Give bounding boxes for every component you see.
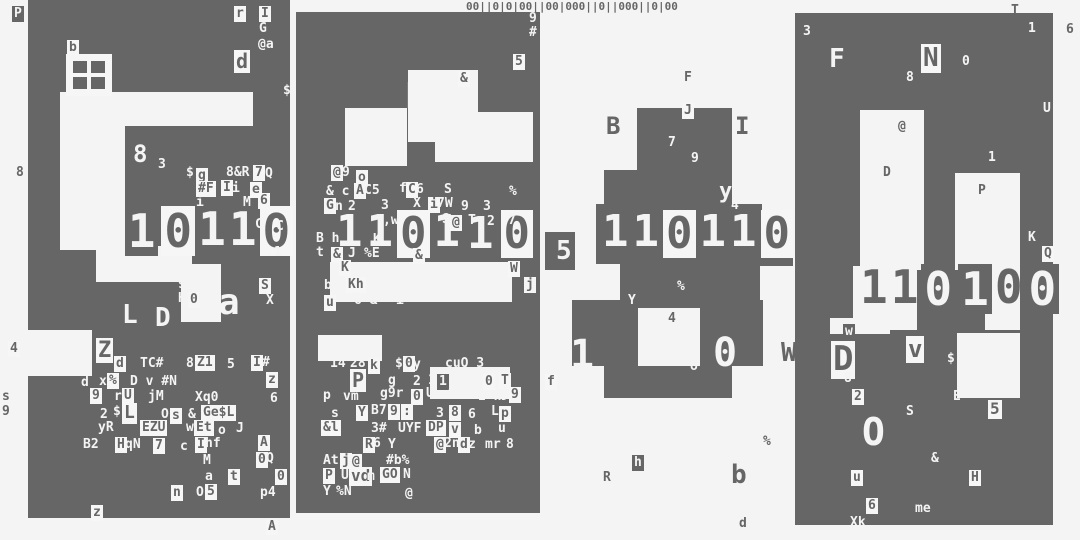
noise-glyph: 9 — [388, 404, 400, 420]
noise-glyph: S — [259, 278, 271, 294]
noise-glyph: %N — [336, 485, 352, 499]
noise-glyph: 7W — [437, 197, 453, 211]
noise-glyph: Q — [265, 167, 273, 181]
noise-glyph: # — [262, 356, 270, 370]
noise-glyph: X — [266, 294, 274, 308]
noise-glyph: DP — [426, 420, 446, 436]
code-char: 0 — [921, 264, 955, 314]
noise-glyph: A — [258, 435, 270, 451]
noise-glyph: G — [259, 22, 267, 36]
noise-glyph: 1 — [1028, 22, 1036, 36]
noise-glyph: Ge$L — [201, 405, 236, 421]
noise-glyph: U — [341, 469, 349, 483]
noise-glyph: 6 — [258, 193, 270, 209]
noise-glyph: Z1 — [195, 355, 215, 371]
noise-glyph: Xq0 — [195, 391, 218, 405]
noise-glyph: b — [731, 462, 747, 489]
white-rect — [955, 173, 1020, 270]
noise-glyph: D v #N — [130, 375, 177, 389]
noise-glyph: j — [501, 387, 509, 401]
noise-glyph: 5 — [988, 400, 1002, 419]
noise-glyph: B2 — [83, 438, 99, 452]
noise-glyph: x — [99, 375, 107, 389]
noise-glyph: b — [67, 40, 79, 56]
noise-glyph: W — [508, 261, 520, 277]
noise-glyph: yR — [98, 421, 114, 435]
noise-glyph: L — [122, 302, 138, 329]
white-rect — [860, 110, 924, 270]
noise-glyph: p — [499, 406, 511, 422]
noise-glyph: 4 — [731, 199, 739, 213]
noise-glyph: 0 — [483, 374, 495, 390]
code-char: 1 — [700, 210, 727, 254]
noise-glyph: EZU — [140, 420, 167, 436]
noise-glyph: N — [401, 467, 413, 483]
noise-glyph: D — [883, 166, 891, 180]
noise-glyph: b — [474, 424, 482, 438]
noise-glyph: % — [107, 373, 119, 389]
noise-glyph: H — [178, 292, 186, 306]
noise-glyph: 1 — [570, 334, 594, 376]
white-rect — [60, 92, 253, 126]
noise-glyph: P — [323, 468, 335, 484]
noise-glyph: 6 — [468, 408, 476, 422]
noise-glyph: 6 — [866, 498, 878, 514]
noise-glyph: jM — [148, 390, 164, 404]
noise-glyph: O — [198, 292, 206, 306]
noise-glyph: o — [690, 360, 698, 374]
noise-glyph: 9 — [461, 200, 469, 214]
noise-glyph: 8 — [186, 357, 194, 371]
noise-glyph: Y — [323, 485, 331, 499]
noise-glyph: s — [170, 408, 182, 424]
noise-glyph: $ — [113, 405, 121, 419]
noise-glyph: 9 — [178, 278, 186, 292]
noise-glyph: 2 — [348, 200, 356, 214]
noise-glyph: Et — [194, 420, 214, 436]
code-char: 1 — [125, 206, 159, 256]
noise-glyph: 3 — [803, 25, 811, 39]
noise-glyph: I — [735, 114, 749, 139]
noise-glyph: 9 — [2, 405, 10, 419]
noise-glyph: C — [276, 220, 284, 234]
noise-glyph: D — [155, 305, 171, 332]
panel4-code: 110100 — [860, 264, 1059, 314]
code-char: 0 — [995, 264, 1023, 310]
noise-glyph: 14 — [330, 357, 346, 371]
noise-glyph: me — [915, 502, 931, 516]
noise-glyph: S — [444, 183, 452, 197]
noise-glyph: 6 — [270, 392, 278, 406]
noise-glyph: T — [1011, 4, 1019, 18]
code-char: 1 — [958, 264, 992, 314]
noise-glyph: @a — [258, 38, 274, 52]
noise-glyph: 8 — [906, 71, 914, 85]
noise-glyph: ,w — [383, 214, 399, 228]
noise-glyph: k — [368, 358, 380, 374]
noise-glyph: 8 — [133, 142, 147, 167]
code-char: 1 — [229, 206, 257, 252]
noise-glyph: f — [545, 374, 557, 390]
noise-glyph: O — [196, 486, 204, 500]
noise-glyph: % — [677, 280, 685, 294]
noise-glyph: 0 — [962, 55, 970, 69]
noise-glyph: 9 — [90, 388, 102, 404]
noise-glyph: 3 — [436, 407, 444, 421]
noise-glyph: F — [829, 46, 845, 73]
noise-glyph: M — [203, 454, 211, 468]
noise-glyph: $ — [947, 352, 955, 366]
noise-glyph: 7 — [253, 165, 265, 181]
noise-glyph: J — [348, 247, 356, 261]
panel1-code: 110110 — [94, 206, 293, 256]
noise-glyph: 6 — [373, 437, 381, 451]
noise-glyph: 8&R — [226, 166, 249, 180]
noise-glyph: d — [234, 50, 250, 73]
noise-glyph: a — [205, 470, 213, 484]
code-char: 1 — [633, 210, 660, 254]
code-char: 0 — [501, 210, 534, 258]
noise-glyph: & — [931, 452, 939, 466]
noise-glyph: 0 — [411, 389, 423, 405]
noise-glyph: & — [458, 71, 470, 87]
noise-glyph: 5 — [556, 238, 572, 265]
noise-glyph: d — [114, 356, 126, 372]
noise-glyph: & — [413, 248, 425, 264]
code-char: 1 — [891, 264, 919, 310]
noise-glyph: $ — [186, 166, 194, 180]
code-char: 0 — [161, 206, 195, 256]
noise-glyph: @ — [405, 487, 413, 501]
noise-glyph: 3# — [371, 422, 387, 436]
noise-glyph: qN — [125, 438, 141, 452]
noise-glyph: i — [232, 182, 240, 196]
noise-glyph: Y — [356, 405, 368, 421]
noise-glyph: h — [632, 455, 644, 471]
noise-glyph: 6 & — [354, 294, 377, 308]
noise-glyph: o1 — [446, 387, 462, 401]
noise-captcha-canvas: 110110110110110110110100 P84s9T6brIG@ad$… — [0, 0, 1080, 540]
noise-glyph: Q — [266, 452, 274, 466]
noise-glyph: 9 — [509, 387, 521, 403]
noise-glyph: H — [969, 470, 981, 486]
noise-glyph: O — [862, 413, 885, 453]
noise-glyph: $ — [283, 84, 291, 98]
noise-glyph: u — [851, 470, 863, 486]
noise-glyph: i — [196, 196, 204, 210]
noise-glyph: 4 — [440, 86, 459, 120]
noise-glyph: u — [324, 295, 336, 311]
noise-glyph: 2 — [852, 389, 864, 405]
noise-glyph: Y — [388, 438, 396, 452]
noise-glyph: 1 — [988, 151, 996, 165]
noise-glyph: &l — [321, 420, 341, 436]
noise-glyph: L — [122, 403, 137, 424]
noise-glyph: Kh — [346, 277, 366, 293]
noise-glyph: n — [335, 200, 343, 214]
noise-glyph: t — [316, 246, 324, 260]
noise-glyph: A — [266, 519, 278, 535]
white-rect — [28, 330, 92, 376]
noise-glyph: s — [331, 407, 339, 421]
noise-glyph: 6 — [416, 183, 424, 197]
noise-glyph: 4 — [668, 312, 676, 326]
noise-glyph: .1 — [266, 246, 282, 260]
noise-glyph: S — [906, 405, 914, 419]
noise-glyph: L — [491, 405, 499, 419]
noise-glyph: k — [405, 80, 425, 116]
noise-glyph: t — [228, 469, 240, 485]
noise-glyph: w — [186, 421, 194, 435]
noise-glyph: Xk — [850, 516, 866, 530]
noise-glyph: F — [684, 71, 692, 85]
noise-glyph: 2 — [413, 375, 421, 389]
noise-glyph: p4 — [260, 486, 276, 500]
noise-glyph: 5 — [205, 484, 217, 500]
noise-glyph: C5 — [364, 184, 380, 198]
noise-glyph: 0 — [275, 469, 287, 485]
noise-glyph: c — [180, 440, 188, 454]
noise-glyph: v — [906, 336, 924, 363]
noise-glyph: E n — [478, 390, 501, 404]
noise-glyph: $ — [395, 357, 403, 371]
noise-glyph: J — [682, 103, 694, 119]
noise-glyph: 7 — [508, 214, 516, 228]
noise-glyph: a — [373, 262, 381, 276]
code-char: 0 — [663, 210, 696, 258]
noise-glyph: vm — [343, 390, 359, 404]
code-char: 0 — [761, 210, 794, 258]
noise-glyph: hf — [205, 437, 221, 451]
noise-glyph: B — [606, 114, 620, 139]
noise-glyph: g9r — [380, 387, 403, 401]
white-rect — [830, 318, 890, 334]
code-char: 1 — [860, 264, 888, 310]
noise-glyph: : — [401, 404, 413, 420]
noise-glyph: z — [266, 372, 278, 388]
noise-glyph: P — [210, 280, 218, 294]
noise-glyph: z — [91, 505, 103, 521]
noise-glyph: C — [255, 218, 263, 232]
noise-glyph: b — [324, 279, 332, 293]
noise-glyph: cuQ 3 — [445, 357, 484, 371]
noise-glyph: % — [763, 435, 771, 449]
window-grid-icon — [66, 54, 112, 96]
noise-glyph: # H — [388, 279, 411, 293]
noise-glyph: n — [171, 485, 183, 501]
noise-glyph: a — [218, 284, 240, 322]
noise-glyph: %E — [364, 247, 380, 261]
noise-glyph: w — [66, 196, 74, 210]
noise-glyph: J — [236, 422, 244, 436]
noise-glyph: 8 — [506, 438, 514, 452]
code-char: 1 — [198, 206, 226, 252]
noise-glyph: r — [114, 390, 122, 404]
noise-glyph: # — [529, 26, 537, 40]
noise-glyph: N — [921, 44, 941, 73]
noise-glyph: u — [498, 422, 506, 436]
panel3-code: 110110 — [602, 210, 793, 258]
noise-glyph: 8 — [844, 372, 852, 386]
noise-glyph: s — [371, 280, 379, 294]
noise-glyph: K — [339, 260, 351, 276]
noise-glyph: 2 — [487, 215, 495, 229]
noise-glyph: W — [781, 340, 797, 367]
noise-glyph: 7 — [153, 438, 165, 454]
noise-glyph: Q — [1042, 246, 1054, 262]
noise-glyph: S — [442, 213, 450, 227]
noise-glyph: @ — [898, 120, 906, 134]
noise-glyph: 9 — [691, 152, 699, 166]
noise-glyph: s — [2, 390, 10, 404]
noise-glyph: UYF — [398, 422, 421, 436]
noise-glyph: @ — [450, 215, 462, 231]
noise-glyph: 9 — [529, 12, 537, 26]
noise-glyph: 3 — [483, 200, 491, 214]
noise-glyph: 3 — [158, 158, 166, 172]
noise-glyph: Z — [96, 338, 113, 363]
code-char: 1 — [730, 210, 757, 254]
noise-glyph: 5 — [513, 54, 525, 70]
noise-glyph: M — [243, 196, 251, 210]
noise-glyph: 3 — [381, 199, 389, 213]
noise-glyph: 6 — [1066, 23, 1074, 37]
noise-glyph: #b% — [386, 454, 409, 468]
top-binary-string: 00||0|0|00||00|000||0||000||0|00 — [466, 0, 678, 13]
noise-glyph: j — [524, 277, 536, 293]
noise-glyph: 5 — [227, 358, 235, 372]
noise-glyph: T — [468, 214, 476, 228]
noise-glyph: d — [81, 376, 89, 390]
noise-glyph: d — [739, 517, 747, 531]
noise-glyph: 8 — [16, 166, 24, 180]
noise-glyph: Y — [628, 294, 636, 308]
noise-glyph: GO — [380, 467, 400, 483]
noise-glyph: m — [367, 470, 375, 484]
dark-block — [604, 170, 732, 206]
noise-glyph: p — [323, 389, 331, 403]
noise-glyph: U — [426, 387, 434, 401]
code-char: 1 — [602, 210, 629, 254]
noise-glyph: 8 — [449, 405, 461, 421]
noise-glyph: B7 — [371, 404, 387, 418]
noise-glyph: K — [1028, 231, 1036, 245]
noise-glyph: w — [843, 324, 855, 340]
noise-glyph: P — [978, 184, 986, 198]
noise-glyph: 4 — [8, 341, 20, 357]
noise-glyph: R — [603, 471, 611, 485]
white-rect — [345, 108, 407, 166]
noise-glyph: mr — [483, 437, 503, 453]
noise-glyph: 5 — [795, 455, 803, 469]
noise-glyph: & c — [326, 185, 349, 199]
noise-glyph: r — [234, 6, 246, 22]
noise-glyph: o — [500, 120, 508, 134]
noise-glyph: 9 — [342, 166, 350, 180]
white-rect — [957, 333, 1020, 398]
noise-glyph: 0 — [713, 332, 737, 374]
noise-glyph: At — [323, 454, 339, 468]
code-char: 0 — [1026, 264, 1060, 314]
noise-glyph: B h — [316, 232, 339, 246]
noise-glyph: i — [396, 294, 404, 308]
noise-glyph: % — [509, 185, 517, 199]
noise-glyph: I — [259, 6, 271, 22]
noise-glyph: U — [1043, 102, 1051, 116]
noise-glyph: P — [12, 6, 24, 22]
noise-glyph: z — [468, 438, 476, 452]
noise-glyph: K — [373, 233, 381, 247]
noise-glyph: E — [953, 390, 961, 404]
code-char: 1 — [94, 206, 122, 252]
noise-glyph: TC# — [140, 357, 163, 371]
noise-glyph: X — [413, 197, 421, 211]
noise-glyph: 7 — [668, 136, 676, 150]
noise-glyph: y — [413, 358, 421, 372]
